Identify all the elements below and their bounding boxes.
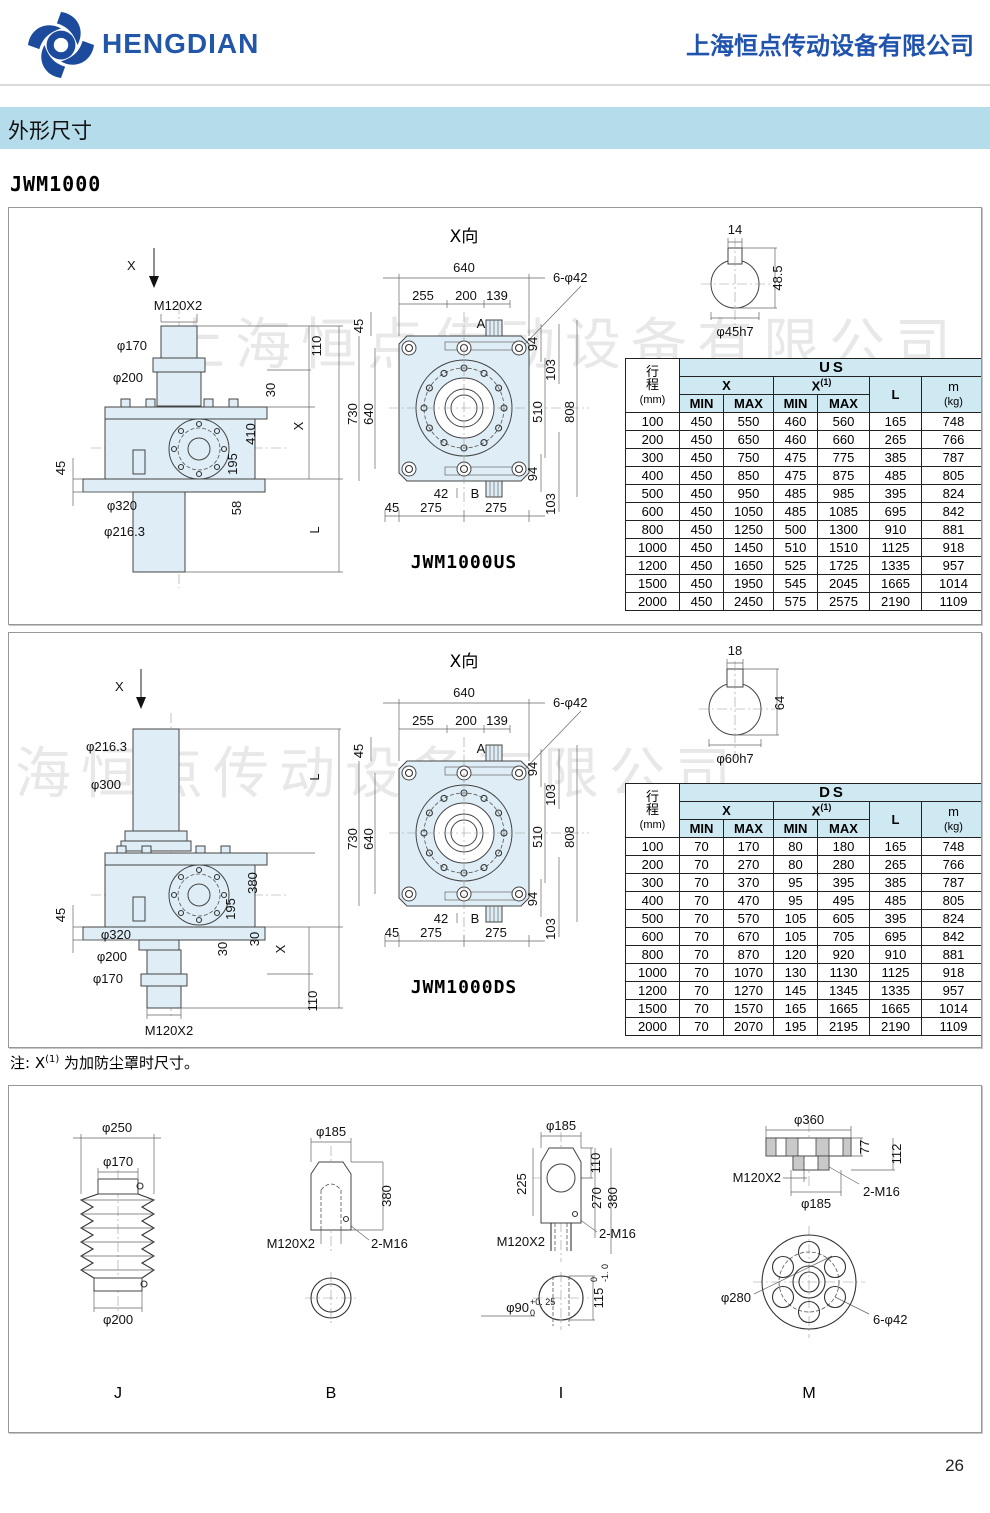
dim-label: 45 [53,461,68,475]
table-cell: 70 [680,874,724,892]
table-cell: 130 [774,964,818,982]
table-cell: 265 [870,431,922,449]
dim-label: L [307,526,322,533]
dim-label: 2-M16 [599,1226,636,1241]
dim-label: φ216.3 [104,524,145,539]
table-cell: 470 [724,892,774,910]
dim-label: φ320 [107,498,137,513]
table-cell: 300 [626,449,680,467]
table-cell: 1665 [870,1000,922,1018]
dim-label: φ250 [102,1120,132,1135]
page-number: 26 [945,1456,964,1476]
company-name: 上海恒点传动设备有限公司 [686,26,974,61]
dim-tolerance: +0. 25 [530,1297,555,1307]
table-row: 1000450145051015101125918 [626,539,983,557]
table-cell: 1510 [818,539,870,557]
table-cell: 495 [818,892,870,910]
panel-jwm1000us: 上海恒点传动设备有限公司 [8,207,982,625]
table-cell: 70 [680,928,724,946]
dim-tolerance: 0 [589,1277,599,1282]
table-row: 20004502450575257521901109 [626,593,983,611]
column-header-max: MAX [818,820,870,838]
dim-label: φ200 [97,949,127,964]
dim-label: φ216.3 [86,739,127,754]
dim-label: 640 [453,260,475,275]
dim-tolerance: -1. 0 [600,1264,610,1282]
detail-label-j: J [114,1385,122,1402]
table-cell: 1050 [724,503,774,521]
dim-label: X [115,679,124,694]
drawing-caption: JWM1000DS [411,977,518,998]
dim-label: 255 [412,288,434,303]
us-shaft-section-drawing: 14 48.5 φ45h7 [687,218,977,348]
table-cell: 100 [626,413,680,431]
dim-label: 103 [543,359,558,381]
table-cell: 1014 [922,1000,983,1018]
table-row: 300450750475775385787 [626,449,983,467]
dim-label: 94 [525,892,540,906]
table-cell: 1070 [724,964,774,982]
table-cell: 395 [870,910,922,928]
dim-label: 58 [229,501,244,515]
dim-label: 270 [589,1187,604,1209]
dim-label: 45 [385,500,399,515]
table-row: 400450850475875485805 [626,467,983,485]
table-cell: 800 [626,521,680,539]
table-cell: 70 [680,982,724,1000]
dim-label: 103 [543,918,558,940]
table-cell: 400 [626,467,680,485]
table-cell: 545 [774,575,818,593]
table-cell: 2045 [818,575,870,593]
table-cell: 2575 [818,593,870,611]
table-cell: 842 [922,503,983,521]
column-header-stroke: 行程(mm) [626,784,680,838]
table-cell: 70 [680,1000,724,1018]
table-cell: 1130 [818,964,870,982]
table-cell: 705 [818,928,870,946]
table-cell: 385 [870,874,922,892]
dim-label: B [471,911,480,926]
table-cell: 842 [922,928,983,946]
table-cell: 450 [680,521,724,539]
dim-label: 380 [379,1185,394,1207]
detail-label-b: B [326,1385,337,1402]
table-cell: 485 [774,485,818,503]
table-cell: 510 [774,539,818,557]
table-cell: 985 [818,485,870,503]
table-cell: 450 [680,467,724,485]
table-cell: 918 [922,539,983,557]
table-cell: 695 [870,928,922,946]
dim-label: φ185 [546,1118,576,1133]
table-cell: 1335 [870,982,922,1000]
column-header-max: MAX [724,395,774,413]
dim-label: L [307,773,322,780]
table-cell: 1250 [724,521,774,539]
us-top-geometry [359,274,589,522]
ds-top-view-drawing: X向 640 255 200 139 6-φ42 A 45 730 640 94… [349,641,639,1041]
dim-label: X [273,944,288,953]
table-cell: 881 [922,521,983,539]
dim-label: 275 [485,925,507,940]
hengdian-logo-icon [28,10,94,78]
table-cell: 450 [680,449,724,467]
dim-label: φ360 [794,1112,824,1127]
table-row: 4007047095495485805 [626,892,983,910]
dim-label: 110 [309,336,324,357]
dim-label: 510 [530,401,545,423]
table-cell: 1665 [870,575,922,593]
table-cell: 1570 [724,1000,774,1018]
dim-label: 275 [485,500,507,515]
table-cell: 875 [818,467,870,485]
table-cell: 605 [818,910,870,928]
table-row: 2000702070195219521901109 [626,1018,983,1036]
table-cell: 670 [724,928,774,946]
dim-label: 42 [434,911,448,926]
table-cell: 300 [626,874,680,892]
column-header-max: MAX [818,395,870,413]
footnote: 注: X(1) 为加防尘罩时尺寸。 [10,1052,199,1073]
table-title: US [680,359,983,377]
table-cell: 695 [870,503,922,521]
dim-label: φ90 [506,1300,529,1315]
table-cell: 805 [922,467,983,485]
table-cell: 165 [774,1000,818,1018]
table-cell: 766 [922,431,983,449]
table-cell: 2000 [626,1018,680,1036]
dim-label: 112 [889,1144,904,1165]
table-cell: 2450 [724,593,774,611]
table-cell: 1109 [922,1018,983,1036]
dim-tolerance: 0 [530,1308,535,1318]
dim-label: 139 [486,288,508,303]
table-cell: 450 [680,503,724,521]
table-cell: 450 [680,557,724,575]
table-cell: 1500 [626,1000,680,1018]
table-cell: 105 [774,928,818,946]
table-title: DS [680,784,983,802]
table-row: 60070670105705695842 [626,928,983,946]
dim-label: 200 [455,288,477,303]
dim-label: 808 [562,401,577,423]
dim-label: φ170 [93,971,123,986]
dim-label: M120X2 [733,1170,781,1185]
table-cell: 180 [818,838,870,856]
table-cell: 500 [626,910,680,928]
dim-label: φ280 [721,1290,751,1305]
dim-label: φ170 [117,338,147,353]
table-cell: 70 [680,946,724,964]
table-cell: 1270 [724,982,774,1000]
column-header-stroke: 行程(mm) [626,359,680,413]
dim-label: 14 [728,222,742,237]
dim-label: 6-φ42 [873,1312,907,1327]
dim-label: 808 [562,826,577,848]
table-cell: 2190 [870,1018,922,1036]
table-cell: 105 [774,910,818,928]
table-cell: 850 [724,467,774,485]
column-header-x1: X(1) [774,802,870,820]
dim-label: A [477,741,486,756]
us-spec-table: 行程(mm) US X X(1) L m(kg) MIN MAX MIN MAX… [625,358,982,611]
table-row: 50070570105605395824 [626,910,983,928]
dim-label: 200 [455,713,477,728]
table-cell: 450 [680,431,724,449]
dim-label: 45 [385,925,399,940]
table-cell: 918 [922,964,983,982]
dim-label: M120X2 [267,1236,315,1251]
table-row: 3007037095395385787 [626,874,983,892]
table-row: 500450950485985395824 [626,485,983,503]
dim-label: 380 [605,1187,620,1209]
ds-shaft-section-drawing: 18 64 φ60h7 [687,643,977,773]
column-header-x1: X(1) [774,377,870,395]
table-cell: 280 [818,856,870,874]
table-cell: 650 [724,431,774,449]
dim-label: 45 [351,319,366,333]
end-fittings-drawing: φ250 φ170 φ200 J φ185 380 M120X2 2-M16 B [9,1086,981,1432]
dim-label: M120X2 [145,1023,193,1038]
dim-label: 195 [225,453,240,475]
table-cell: 550 [724,413,774,431]
table-cell: 1725 [818,557,870,575]
table-cell: 165 [870,838,922,856]
table-cell: 485 [870,467,922,485]
table-cell: 485 [870,892,922,910]
catalog-page: HENGDIAN 上海恒点传动设备有限公司 外形尺寸 JWM1000 上海恒点传… [0,0,990,1513]
ds-spec-table: 行程(mm) DS X X(1) L m(kg) MIN MAX MIN MAX… [625,783,982,1036]
table-cell: 70 [680,892,724,910]
table-row: 1200450165052517251335957 [626,557,983,575]
dim-label: 6-φ42 [553,270,587,285]
table-cell: 2070 [724,1018,774,1036]
table-cell: 748 [922,838,983,856]
us-table-body: 1004505504605601657482004506504606602657… [626,413,983,611]
dim-label-group: 115 0 -1. 0 [589,1264,610,1308]
table-cell: 1345 [818,982,870,1000]
table-cell: 920 [818,946,870,964]
dim-label: 30 [247,932,262,946]
table-cell: 1109 [922,593,983,611]
table-cell: 600 [626,928,680,946]
view-title: X向 [450,227,479,247]
table-cell: 460 [774,431,818,449]
table-cell: 80 [774,856,818,874]
dim-label: 110 [588,1153,603,1174]
table-cell: 824 [922,910,983,928]
dim-label: 45 [351,744,366,758]
table-cell: 881 [922,946,983,964]
dim-label: φ45h7 [716,324,753,339]
column-header-l: L [870,377,922,413]
panel-jwm1000ds: 上海恒点传动设备有限公司 [8,632,982,1048]
model-label: JWM1000 [10,172,101,196]
table-cell: 395 [870,485,922,503]
table-cell: 1125 [870,964,922,982]
table-cell: 1500 [626,575,680,593]
table-cell: 500 [626,485,680,503]
table-row: 2007027080280265766 [626,856,983,874]
dim-label: 48.5 [770,265,785,290]
column-header-max: MAX [724,820,774,838]
table-cell: 870 [724,946,774,964]
column-header-min: MIN [774,820,818,838]
table-cell: 1650 [724,557,774,575]
dim-label: 103 [543,784,558,806]
table-cell: 400 [626,892,680,910]
table-cell: 575 [774,593,818,611]
dim-label: 115 [591,1288,606,1309]
detail-b-geometry [305,1138,383,1326]
dim-label: 2-M16 [863,1184,900,1199]
dim-label: φ320 [101,927,131,942]
table-cell: 100 [626,838,680,856]
table-cell: 1125 [870,539,922,557]
view-title: X向 [450,652,479,672]
table-cell: 1665 [818,1000,870,1018]
dim-label: 64 [772,696,787,710]
table-cell: 70 [680,838,724,856]
table-cell: 805 [922,892,983,910]
table-row: 1500701570165166516651014 [626,1000,983,1018]
dim-label: B [471,486,480,501]
table-cell: 748 [922,413,983,431]
dim-label: 139 [486,713,508,728]
table-cell: 500 [774,521,818,539]
table-cell: 450 [680,593,724,611]
table-cell: 120 [774,946,818,964]
ds-table-body: 1007017080180165748200702708028026576630… [626,838,983,1036]
table-cell: 70 [680,1018,724,1036]
table-cell: 787 [922,874,983,892]
table-cell: 165 [870,413,922,431]
table-cell: 270 [724,856,774,874]
column-header-min: MIN [680,395,724,413]
table-cell: 766 [922,856,983,874]
table-cell: 1000 [626,964,680,982]
table-cell: 1950 [724,575,774,593]
table-cell: 370 [724,874,774,892]
dim-label: M120X2 [497,1234,545,1249]
table-row: 80070870120920910881 [626,946,983,964]
table-row: 80045012505001300910881 [626,521,983,539]
us-top-view-drawing: X向 640 255 200 139 6-φ42 A 45 730 640 94… [349,216,639,616]
dim-label: 18 [728,643,742,658]
dim-label: 6-φ42 [553,695,587,710]
table-cell: 385 [870,449,922,467]
table-cell: 950 [724,485,774,503]
detail-label-i: I [559,1385,563,1402]
dim-label: M120X2 [154,298,202,313]
ds-side-geometry [73,669,343,1019]
table-cell: 450 [680,485,724,503]
section-title-bar: 外形尺寸 [0,107,990,149]
table-cell: 824 [922,485,983,503]
table-cell: 70 [680,964,724,982]
table-cell: 70 [680,856,724,874]
page-header: HENGDIAN 上海恒点传动设备有限公司 [0,0,990,86]
dim-label: 45 [53,908,68,922]
dim-label: 30 [263,383,278,397]
table-row: 100450550460560165748 [626,413,983,431]
table-cell: 460 [774,413,818,431]
us-shaft-geometry [701,238,777,332]
table-row: 60045010504851085695842 [626,503,983,521]
dim-label: 730 [345,403,360,425]
table-cell: 560 [818,413,870,431]
detail-m-geometry [753,1122,895,1338]
dim-label: 94 [525,467,540,481]
dim-label: 640 [453,685,475,700]
dim-label: 275 [420,500,442,515]
dim-label: 255 [412,713,434,728]
dim-label: X [127,258,136,273]
table-cell: 450 [680,413,724,431]
table-cell: 95 [774,874,818,892]
column-header-min: MIN [774,395,818,413]
dim-label: φ185 [316,1124,346,1139]
table-row: 120070127014513451335957 [626,982,983,1000]
table-cell: 787 [922,449,983,467]
dim-label: 275 [420,925,442,940]
dim-label: 225 [514,1173,529,1195]
table-cell: 775 [818,449,870,467]
dim-label: A [477,316,486,331]
column-header-x: X [680,802,774,820]
table-cell: 1300 [818,521,870,539]
dim-label: φ60h7 [716,751,753,766]
table-cell: 1000 [626,539,680,557]
dim-label: 94 [525,762,540,776]
detail-label-m: M [802,1385,815,1402]
table-cell: 600 [626,503,680,521]
us-side-view-drawing: X M120X2 φ170 φ200 φ320 φ216.3 45 110 30… [21,218,351,616]
dim-label: 94 [525,337,540,351]
dim-label: 110 [305,991,320,1012]
table-cell: 450 [680,539,724,557]
dim-label: 510 [530,826,545,848]
table-cell: 1200 [626,982,680,1000]
table-cell: 1014 [922,575,983,593]
dim-label: 640 [361,403,376,425]
column-header-x: X [680,377,774,395]
table-cell: 200 [626,431,680,449]
table-cell: 2195 [818,1018,870,1036]
table-cell: 485 [774,503,818,521]
dim-label: 730 [345,828,360,850]
dim-label: 103 [543,493,558,515]
table-cell: 1085 [818,503,870,521]
table-cell: 475 [774,467,818,485]
table-cell: 265 [870,856,922,874]
dim-label: φ200 [103,1312,133,1327]
panel-end-fittings: φ250 φ170 φ200 J φ185 380 M120X2 2-M16 B [8,1085,982,1433]
dim-label: 42 [434,486,448,501]
table-cell: 957 [922,557,983,575]
table-row: 200450650460660265766 [626,431,983,449]
column-header-min: MIN [680,820,724,838]
table-cell: 1450 [724,539,774,557]
dim-label: X [291,421,306,430]
column-header-m: m(kg) [922,377,983,413]
table-cell: 570 [724,910,774,928]
drawing-caption: JWM1000US [411,552,518,573]
dim-label: φ185 [801,1196,831,1211]
table-row: 1007017080180165748 [626,838,983,856]
table-cell: 80 [774,838,818,856]
